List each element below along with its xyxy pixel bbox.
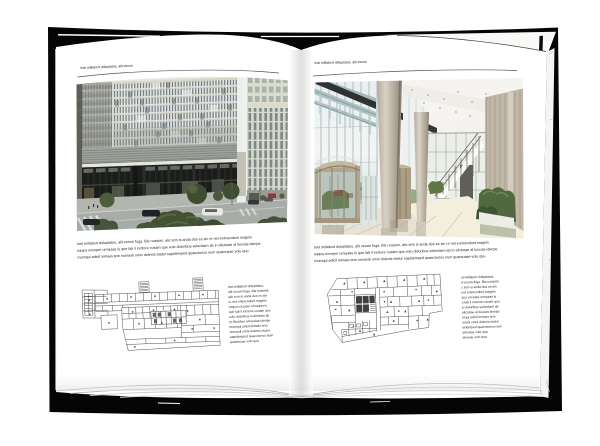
svg-text:anusae volo qua: anusae volo qua <box>463 335 487 340</box>
svg-text:amusae volo qua: amusae volo qua <box>462 330 487 335</box>
